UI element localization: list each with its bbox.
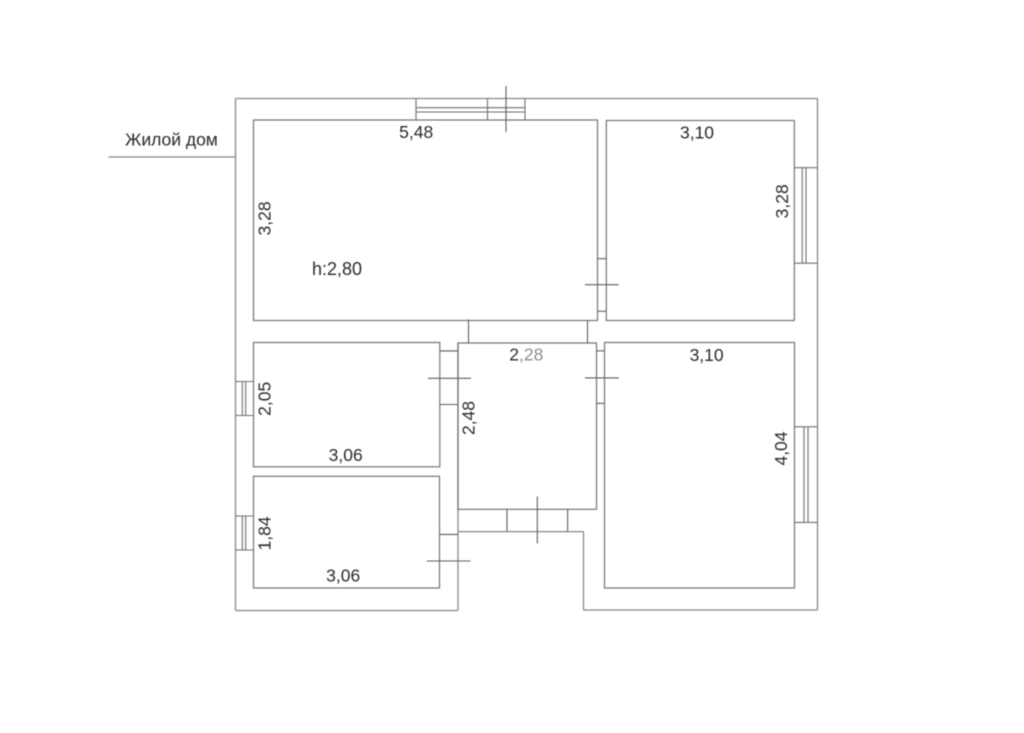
svg-text:3,06: 3,06 [326, 566, 360, 586]
svg-text:1,84: 1,84 [254, 516, 274, 550]
svg-text:3,28: 3,28 [772, 184, 792, 218]
svg-text:h:2,80: h:2,80 [312, 259, 362, 279]
svg-text:3,10: 3,10 [680, 123, 714, 143]
svg-text:5,48: 5,48 [399, 122, 433, 142]
svg-text:3,10: 3,10 [690, 345, 724, 365]
svg-text:Жилой дом: Жилой дом [125, 129, 218, 149]
svg-text:2,48: 2,48 [459, 401, 479, 435]
svg-text:3,06: 3,06 [329, 445, 363, 465]
svg-text:3,28: 3,28 [255, 201, 275, 235]
svg-text:4,04: 4,04 [771, 431, 791, 465]
svg-text:2,05: 2,05 [255, 382, 275, 416]
svg-text:2,28: 2,28 [509, 345, 543, 365]
